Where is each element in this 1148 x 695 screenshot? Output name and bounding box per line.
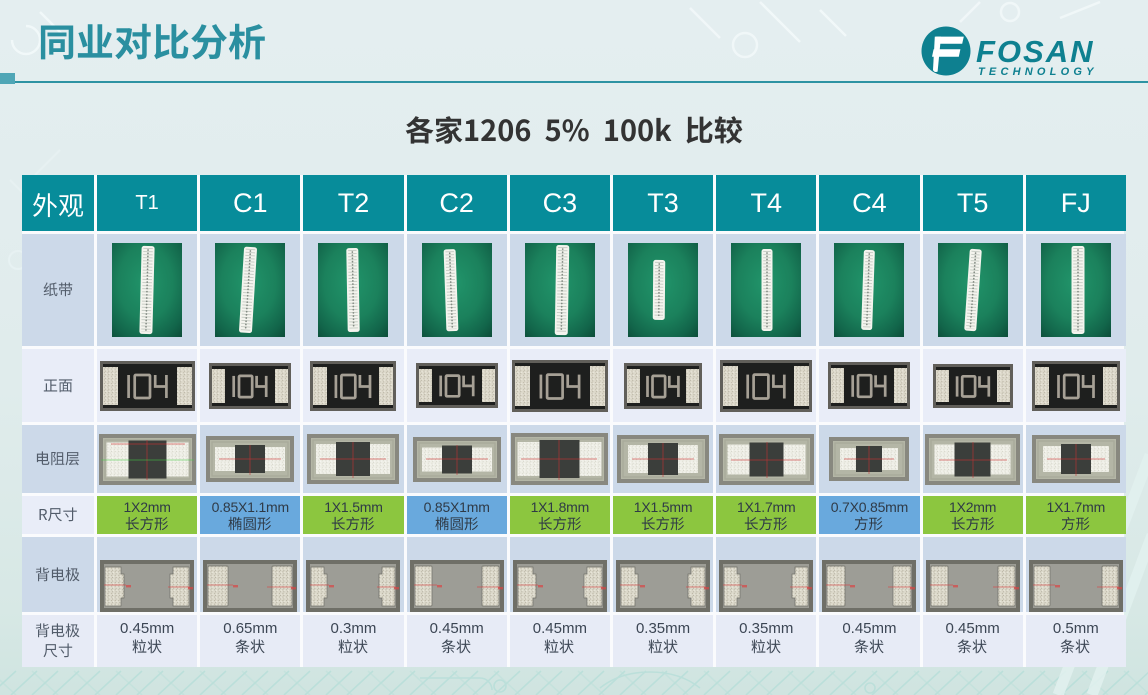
svg-text:FOSAN: FOSAN bbox=[976, 34, 1095, 69]
svg-text:TECHNOLOGY: TECHNOLOGY bbox=[978, 66, 1098, 77]
